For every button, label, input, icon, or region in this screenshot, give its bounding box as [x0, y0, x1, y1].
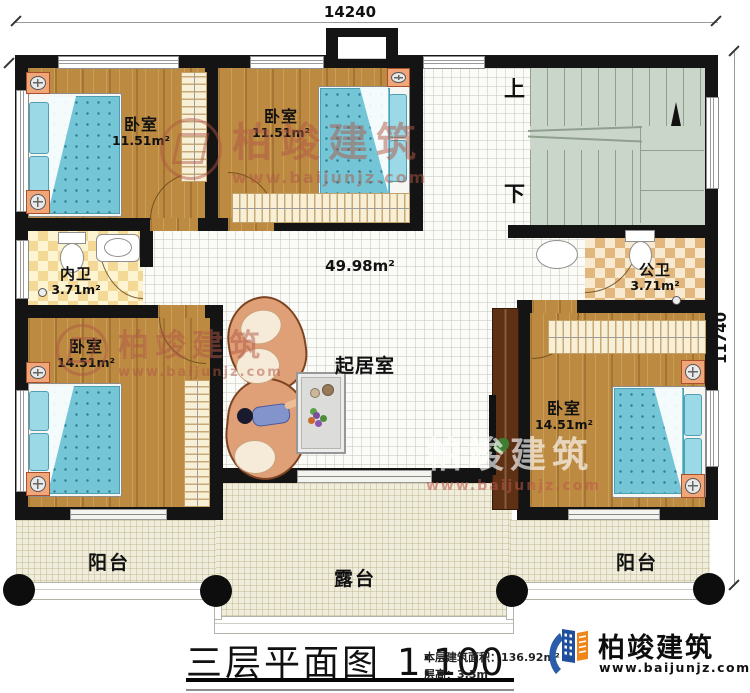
bay-wall-right [386, 28, 398, 58]
balcony-right-label: 阳台 [616, 548, 658, 575]
column [200, 575, 232, 607]
tv [489, 395, 496, 475]
room-name: 卧室 [242, 108, 320, 126]
room-name: 卧室 [102, 116, 180, 134]
pillow [29, 391, 49, 431]
wardrobe [232, 193, 410, 223]
title-underline-thin [186, 689, 514, 691]
brand-logo-icon [546, 624, 592, 680]
sink-basin-public [536, 240, 578, 269]
hall-area-label: 49.98m² [318, 258, 402, 275]
room-name: 卧室 [46, 338, 126, 356]
column [693, 573, 725, 605]
floor-height-text: 层高：3.3m [424, 666, 488, 682]
sliding-door-bedroom-br [568, 509, 660, 520]
nightstand [387, 68, 410, 87]
room-name: 公卫 [618, 262, 692, 279]
wardrobe [184, 380, 210, 507]
nightstand [681, 360, 705, 384]
floor-area-text: 本层建筑面积：136.92m² [424, 649, 560, 665]
dimension-tick [10, 15, 21, 26]
wardrobe [548, 320, 706, 354]
window-top-hall [423, 56, 485, 69]
window-right-bedroom-br [706, 390, 719, 467]
dimension-line-top [15, 22, 718, 23]
room-area: 14.51m² [524, 418, 604, 432]
room-name: 卧室 [524, 400, 604, 418]
table-cup [322, 384, 334, 396]
dimension-top-value: 14240 [308, 3, 392, 21]
sliding-door-living-terrace [297, 470, 432, 483]
terrace-railing [214, 616, 514, 634]
terrace-label: 露台 [334, 564, 376, 591]
stair-up-label: 上 [504, 73, 525, 103]
floor-height-value: 3.3m [457, 668, 488, 681]
terrace-floor [214, 483, 512, 616]
room-area: 3.71m² [618, 279, 692, 293]
room-label-bath-public: 公卫 3.71m² [618, 262, 692, 294]
coffee-table [296, 372, 346, 454]
room-label-bath-inner: 内卫 3.71m² [39, 266, 113, 298]
room-area: 3.71m² [39, 283, 113, 297]
dimension-tick [3, 57, 14, 68]
floor-area-label: 本层建筑面积： [424, 651, 501, 664]
balcony-right-railing [510, 582, 712, 600]
table-flowers [313, 412, 320, 419]
pillow [29, 433, 49, 471]
wardrobe [181, 72, 207, 182]
pillow [684, 438, 702, 478]
stair-down-label: 下 [504, 178, 525, 208]
balcony-left-railing [16, 582, 218, 600]
dimension-tick [710, 15, 721, 26]
tv-cabinet [492, 308, 519, 510]
floorplan-sheet: 14240 11740 上 下 [0, 0, 750, 693]
table-cup [310, 388, 320, 398]
room-label-bedroom-bl: 卧室 14.51m² [46, 338, 126, 371]
brand-url: www.baijunjz.com [599, 660, 750, 675]
dimension-line-right [734, 52, 735, 586]
room-name: 内卫 [39, 266, 113, 283]
room-area: 11.51m² [242, 126, 320, 140]
window-left-bath-inner [16, 240, 29, 299]
window-right-stairs [706, 97, 719, 189]
nightstand [26, 72, 50, 94]
room-area: 14.51m² [46, 356, 126, 370]
person-head [237, 408, 253, 424]
pillow [684, 394, 702, 436]
stair-treads-lower [530, 150, 641, 225]
room-label-living: 起居室 [323, 356, 407, 378]
floor-height-label: 层高： [424, 668, 457, 681]
pillow [29, 102, 49, 154]
window-top-bedroom-tl [58, 56, 179, 69]
brand-logo-block: 柏竣建筑 www.baijunjz.com [546, 620, 738, 684]
pillow [389, 140, 407, 182]
nightstand [26, 472, 50, 496]
pillow [389, 94, 407, 138]
balcony-left-label: 阳台 [88, 548, 130, 575]
bay-interior [338, 37, 386, 59]
column [3, 574, 35, 606]
sink-basin [104, 238, 132, 257]
column [496, 575, 528, 607]
wall-stair-bottom [508, 225, 718, 238]
nightstand [26, 190, 50, 214]
room-label-bedroom-tc: 卧室 11.51m² [242, 108, 320, 141]
room-label-bedroom-tl: 卧室 11.51m² [102, 116, 180, 149]
balcony-right-floor [510, 520, 710, 583]
stair-rail-line [640, 150, 704, 151]
nightstand [681, 474, 705, 498]
room-area: 11.51m² [102, 134, 180, 148]
stair-rail-line [640, 126, 641, 223]
window-top-bedroom-tc [250, 56, 324, 69]
wall-bed-tc-hall [410, 55, 423, 230]
door-hook [672, 296, 681, 305]
stair-rail-line [640, 190, 704, 191]
room-label-bedroom-br: 卧室 14.51m² [524, 400, 604, 433]
sliding-door-bedroom-bl [70, 509, 167, 520]
wall-bed-bl-right [210, 305, 223, 520]
